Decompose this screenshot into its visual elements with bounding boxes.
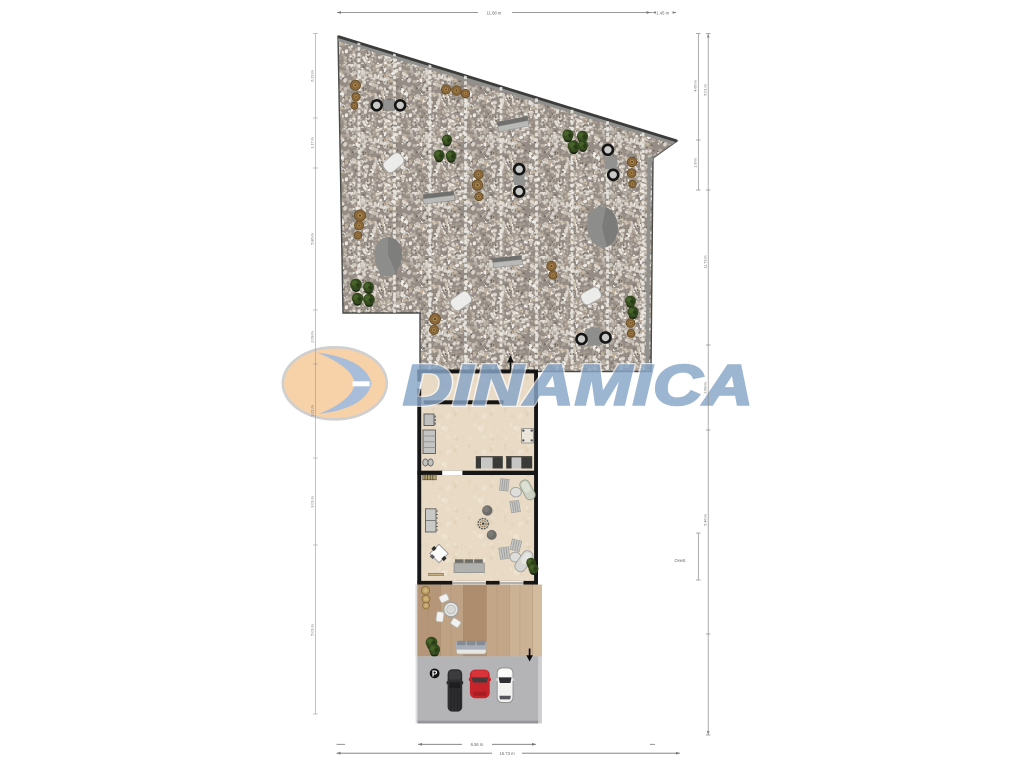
svg-text:DINAMICA: DINAMICA: [403, 354, 754, 418]
svg-text:6.56 m: 6.56 m: [471, 742, 484, 747]
svg-text:5.86 m: 5.86 m: [310, 233, 314, 244]
svg-text:Ovest: Ovest: [675, 558, 687, 563]
svg-text:16.73 m: 16.73 m: [499, 751, 515, 756]
svg-text:11.68 m: 11.68 m: [487, 10, 502, 15]
svg-text:2.08 m: 2.08 m: [310, 331, 314, 342]
svg-text:3.01 m: 3.01 m: [310, 496, 314, 507]
svg-text:1.8 m: 1.8 m: [694, 158, 698, 167]
svg-text:11.73 m: 11.73 m: [703, 255, 707, 268]
svg-text:3.21 m: 3.21 m: [310, 405, 314, 416]
svg-text:1.45 m: 1.45 m: [656, 10, 669, 15]
svg-text:2.68 m: 2.68 m: [703, 382, 707, 393]
svg-text:5.01 m: 5.01 m: [310, 624, 314, 635]
svg-text:5.46 m: 5.46 m: [703, 514, 707, 525]
svg-text:4.66 m: 4.66 m: [694, 80, 698, 91]
svg-text:6.23 m: 6.23 m: [310, 70, 314, 81]
svg-text:5.01 m: 5.01 m: [703, 84, 707, 95]
svg-text:P: P: [432, 670, 438, 679]
svg-text:1.17 m: 1.17 m: [310, 137, 314, 148]
